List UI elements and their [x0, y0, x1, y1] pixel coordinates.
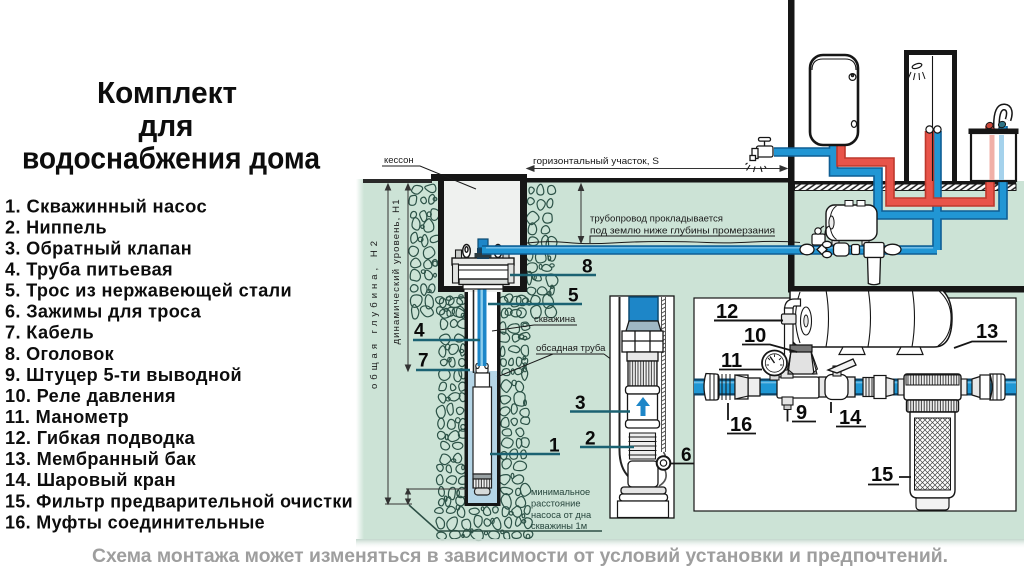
svg-text:14. Шаровый кран: 14. Шаровый кран	[5, 469, 176, 490]
svg-text:13. Мембранный бак: 13. Мембранный бак	[5, 448, 196, 469]
svg-text:5: 5	[568, 286, 579, 307]
svg-text:трубопровод прокладывается: трубопровод прокладывается	[590, 214, 723, 225]
svg-text:7: 7	[418, 351, 429, 372]
svg-text:6. Зажимы для троса: 6. Зажимы для троса	[5, 301, 201, 322]
svg-text:4: 4	[414, 321, 425, 342]
svg-text:под землю ниже глубины промерз: под землю ниже глубины промерзания	[590, 226, 775, 237]
svg-text:3. Обратный клапан: 3. Обратный клапан	[5, 237, 192, 258]
svg-text:для: для	[139, 109, 194, 143]
svg-text:3: 3	[575, 393, 586, 414]
svg-text:6: 6	[681, 445, 692, 466]
svg-text:насоса от дна: насоса от дна	[531, 510, 592, 520]
svg-text:10. Реле давления: 10. Реле давления	[5, 385, 176, 406]
svg-text:9. Штуцер 5-ти выводной: 9. Штуцер 5-ти выводной	[5, 364, 242, 385]
svg-text:15: 15	[871, 464, 893, 486]
svg-text:водоснабжения дома: водоснабжения дома	[22, 142, 321, 176]
svg-text:горизонтальный участок, S: горизонтальный участок, S	[533, 156, 659, 167]
svg-text:4. Труба питьевая: 4. Труба питьевая	[5, 259, 173, 280]
svg-text:1. Скважинный насос: 1. Скважинный насос	[5, 195, 207, 216]
svg-text:8: 8	[582, 257, 593, 278]
svg-text:Комплект: Комплект	[97, 76, 237, 110]
svg-text:5. Трос из нержавеющей стали: 5. Трос из нержавеющей стали	[5, 280, 292, 301]
svg-text:2. Ниппель: 2. Ниппель	[5, 216, 107, 237]
svg-text:12. Гибкая подводка: 12. Гибкая подводка	[5, 427, 195, 448]
svg-text:обсадная труба: обсадная труба	[536, 343, 606, 354]
svg-text:минимальное: минимальное	[531, 487, 590, 497]
svg-text:Схема монтажа может изменяться: Схема монтажа может изменяться в зависим…	[92, 545, 948, 567]
svg-text:7. Кабель: 7. Кабель	[5, 322, 94, 343]
svg-text:13: 13	[976, 321, 998, 343]
svg-text:динамический уровень, Н1: динамический уровень, Н1	[391, 200, 402, 345]
svg-text:скважины 1м: скважины 1м	[531, 521, 587, 531]
svg-text:общая глубина, Н2: общая глубина, Н2	[369, 241, 380, 389]
svg-text:11. Манометр: 11. Манометр	[5, 406, 129, 427]
svg-text:1: 1	[549, 436, 560, 457]
svg-text:расстояние: расстояние	[531, 499, 581, 509]
svg-text:2: 2	[585, 429, 596, 450]
svg-text:8. Оголовок: 8. Оголовок	[5, 343, 114, 364]
svg-text:кессон: кессон	[384, 155, 414, 166]
svg-text:15. Фильтр предварительной очи: 15. Фильтр предварительной очистки	[5, 490, 353, 511]
svg-text:16. Муфты соединительные: 16. Муфты соединительные	[5, 511, 265, 532]
svg-text:скважина: скважина	[534, 314, 576, 325]
